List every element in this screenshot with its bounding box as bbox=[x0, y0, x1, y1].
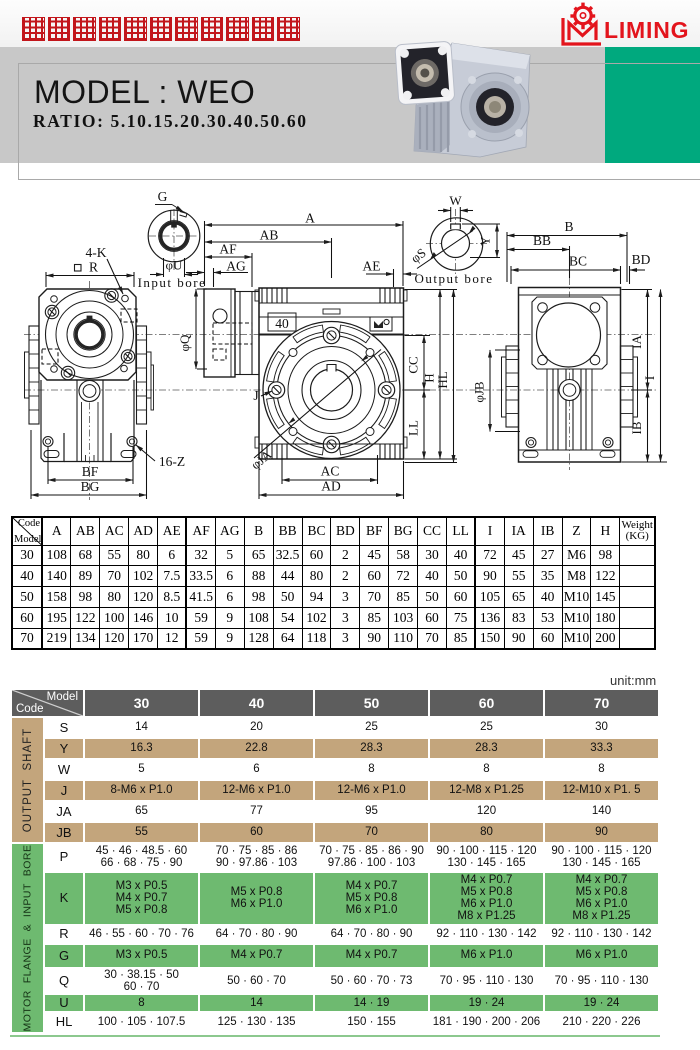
svg-text:φQ: φQ bbox=[177, 334, 192, 352]
svg-text:Input bore: Input bore bbox=[138, 275, 207, 290]
svg-text:IB: IB bbox=[629, 421, 644, 434]
svg-text:I: I bbox=[642, 376, 657, 380]
svg-text:BB: BB bbox=[533, 233, 551, 248]
svg-text:4-K: 4-K bbox=[86, 245, 107, 260]
svg-text:CC: CC bbox=[406, 356, 421, 373]
svg-text:LL: LL bbox=[406, 420, 421, 436]
svg-text:HL: HL bbox=[435, 371, 450, 388]
svg-text:Y: Y bbox=[478, 236, 493, 246]
svg-text:BC: BC bbox=[569, 254, 587, 269]
svg-text:R: R bbox=[89, 260, 98, 275]
svg-text:AF: AF bbox=[219, 242, 237, 257]
svg-text:AD: AD bbox=[321, 479, 341, 494]
svg-text:AG: AG bbox=[226, 259, 246, 274]
svg-text:B: B bbox=[564, 219, 573, 234]
svg-text:φU: φU bbox=[166, 258, 184, 273]
svg-text:16-Z: 16-Z bbox=[159, 454, 185, 469]
svg-text:AB: AB bbox=[260, 228, 279, 243]
svg-text:AE: AE bbox=[363, 259, 381, 274]
svg-text:φJB: φJB bbox=[472, 381, 487, 403]
svg-text:G: G bbox=[158, 189, 168, 204]
svg-text:A: A bbox=[305, 211, 315, 226]
svg-text:40: 40 bbox=[275, 316, 289, 331]
svg-text:BG: BG bbox=[81, 479, 100, 494]
svg-text:BF: BF bbox=[82, 464, 99, 479]
svg-text:φJA: φJA bbox=[248, 446, 275, 472]
svg-text:BD: BD bbox=[632, 252, 651, 267]
svg-text:Output bore: Output bore bbox=[415, 271, 494, 286]
svg-text:IA: IA bbox=[629, 335, 644, 349]
svg-text:AC: AC bbox=[321, 464, 340, 479]
svg-text:W: W bbox=[449, 193, 462, 208]
svg-text:J: J bbox=[253, 388, 258, 403]
